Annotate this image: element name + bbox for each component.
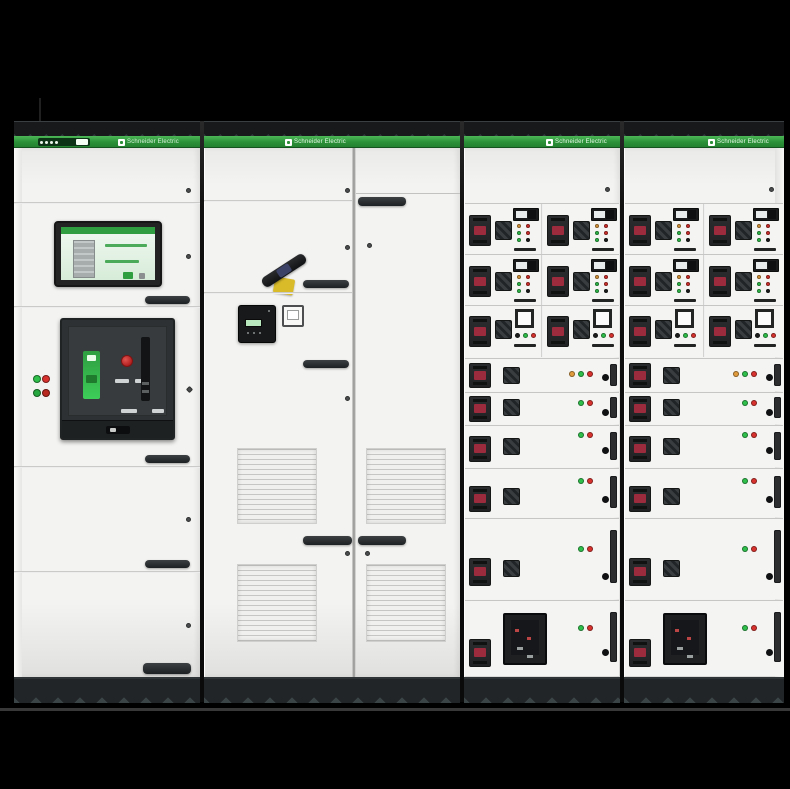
plinth [624, 677, 784, 703]
schneider-logo: Schneider Electric [285, 138, 346, 146]
screw [345, 396, 350, 401]
relay-display [753, 259, 779, 272]
drawer-row [625, 203, 783, 254]
drawer-row [465, 203, 619, 254]
door-handle [143, 663, 191, 674]
drawer-isolator-switch [735, 320, 752, 339]
status-led-red [587, 400, 593, 406]
screw [345, 245, 350, 250]
louver-vent [366, 448, 446, 524]
drawer-rail [610, 432, 617, 460]
status-led-green [677, 289, 681, 293]
roof-cable [39, 98, 41, 122]
breaker-tag [152, 409, 164, 413]
drawer-withdrawal-handle [547, 316, 569, 347]
status-led-green [757, 289, 761, 293]
relay-display [513, 208, 539, 221]
schneider-logo-icon [708, 139, 715, 146]
status-led-orange [733, 371, 739, 377]
roof-trim [204, 121, 460, 136]
screw [186, 386, 193, 393]
relay-display [513, 259, 539, 272]
drawer-unit [625, 204, 702, 254]
status-led-red [751, 371, 757, 377]
status-led-red [609, 333, 614, 338]
status-led-off [686, 238, 690, 242]
switchboard-photo: Schneider Electric [0, 0, 790, 789]
start-button-green [33, 389, 41, 397]
drawer-row [625, 305, 783, 357]
status-led-orange [677, 224, 681, 228]
panel-split [204, 200, 352, 202]
drawer-withdrawal-handle [629, 363, 651, 388]
screw [186, 188, 191, 193]
status-led-red [604, 282, 608, 286]
status-led-green [595, 289, 599, 293]
drawer-isolator-switch [573, 320, 590, 339]
status-led-red [531, 333, 536, 338]
drawer-unit [625, 255, 702, 305]
drawer-rail [774, 530, 781, 583]
status-led-red [771, 333, 776, 338]
drawer-withdrawal-handle [469, 363, 491, 388]
drawer-isolator-switch [503, 438, 520, 455]
drawer-withdrawal-handle [469, 639, 491, 667]
drawer-withdrawal-handle [469, 558, 491, 586]
louver-vent [366, 564, 446, 642]
drawer-withdrawal-handle [629, 396, 651, 422]
meter-window [755, 309, 774, 328]
drawer-rail [774, 397, 781, 418]
drawer-strip [514, 248, 536, 251]
drawer-withdrawal-handle [629, 436, 651, 462]
drawer-isolator-switch [573, 272, 590, 291]
drawer-isolator-switch [655, 320, 672, 339]
status-led-off [766, 238, 770, 242]
drawer-row-wide [625, 425, 783, 467]
panel-split [204, 292, 352, 294]
drawer-isolator-switch [495, 320, 512, 339]
drawer-latch [602, 374, 609, 381]
drawer-unit [543, 255, 618, 305]
drawer-row-wide [625, 518, 783, 599]
relay-display [673, 208, 699, 221]
cabinet-mcc-section-1: Schneider Electric [464, 121, 620, 703]
status-led-green [578, 432, 584, 438]
drawer-latch [766, 496, 773, 503]
plinth [204, 677, 460, 703]
drawer-isolator-switch [663, 560, 680, 577]
drawer-strip [592, 248, 614, 251]
status-led-red [686, 231, 690, 235]
status-led-green [595, 282, 599, 286]
status-led-red [587, 371, 593, 377]
cabinet-front [14, 148, 200, 677]
door-handle [145, 455, 190, 463]
drawer-withdrawal-handle [629, 558, 651, 586]
door-handle [145, 296, 190, 304]
relay-display [591, 208, 617, 221]
panel-split [356, 193, 460, 194]
drawer-row-wide [625, 600, 783, 676]
hmi-button [123, 272, 133, 279]
screw [345, 551, 350, 556]
status-led-red [526, 224, 530, 228]
status-led-off [526, 238, 530, 242]
status-led-orange [517, 275, 521, 279]
drawer-withdrawal-handle [469, 215, 491, 246]
schneider-logo: Schneider Electric [546, 138, 607, 146]
status-led-red [686, 282, 690, 286]
drawer-rail [774, 364, 781, 386]
louver-vent [237, 448, 317, 524]
screw [186, 254, 191, 259]
status-led-green [742, 625, 748, 631]
status-led-off [686, 289, 690, 293]
status-led-red [526, 282, 530, 286]
drawer-rail [610, 530, 617, 583]
multimeter [238, 305, 276, 343]
plinth [14, 677, 200, 703]
status-led-orange [595, 275, 599, 279]
drawer-row-wide [465, 600, 619, 676]
drawer-row [465, 254, 619, 305]
hmi-display [54, 221, 162, 287]
plinth [464, 677, 620, 703]
cabinet-mcc-section-2: Schneider Electric [624, 121, 784, 703]
drawer-row-wide [465, 468, 619, 517]
status-led-green [578, 625, 584, 631]
door-handle [303, 536, 352, 545]
drawer-latch [766, 649, 773, 656]
status-led-red [686, 224, 690, 228]
status-led-red [766, 275, 770, 279]
racking-rail [141, 337, 150, 401]
door-handle [358, 536, 406, 545]
panel-split [14, 466, 200, 468]
drawer-rail [610, 612, 617, 662]
drawer-withdrawal-handle [469, 486, 491, 512]
drawer-unit [543, 204, 618, 254]
status-led-green [595, 231, 599, 235]
breaker-green-label [83, 351, 100, 399]
hmi-switchboard-graphic [73, 240, 95, 278]
drawer-unit [465, 255, 540, 305]
drawer-rail [774, 612, 781, 662]
schneider-logo-icon [118, 139, 125, 146]
panel-split [14, 571, 200, 573]
drawer-latch [766, 447, 773, 454]
status-led-green [517, 289, 521, 293]
drawer-withdrawal-handle [629, 316, 651, 347]
status-led-green [601, 333, 606, 338]
status-led-red [751, 625, 757, 631]
drawer-strip [674, 299, 696, 302]
drawer-unit [465, 204, 540, 254]
hmi-screen-header [61, 227, 155, 234]
status-led-orange [517, 224, 521, 228]
drawer-isolator-switch [503, 488, 520, 505]
drawer-strip [754, 299, 776, 302]
drawer-withdrawal-handle [629, 639, 651, 667]
drawer-isolator-switch [663, 367, 680, 384]
cabinet-coupling-section: Schneider Electric [204, 121, 460, 703]
drawer-rail [610, 364, 617, 386]
relay-display [591, 259, 617, 272]
drawer-isolator-switch [735, 221, 752, 240]
drawer-row-wide [465, 425, 619, 467]
status-led-red [587, 546, 593, 552]
drawer-withdrawal-handle [469, 436, 491, 462]
drawer-row-wide [625, 358, 783, 391]
door-handle [145, 560, 190, 568]
drawer-isolator-switch [663, 399, 680, 416]
status-led-green [578, 546, 584, 552]
drawer-strip [592, 299, 614, 302]
drawer-row [465, 305, 619, 357]
relay-display [753, 208, 779, 221]
status-led-green [677, 238, 681, 242]
status-led-red [526, 231, 530, 235]
relay-display [673, 259, 699, 272]
drawer-latch [602, 496, 609, 503]
meter-display [245, 319, 262, 327]
status-led-off [526, 289, 530, 293]
door-handle [303, 360, 349, 368]
status-led-red [766, 282, 770, 286]
status-led-off [604, 289, 608, 293]
status-led-red [751, 400, 757, 406]
indicator-window [282, 305, 304, 327]
drawer-withdrawal-handle [547, 266, 569, 297]
drawer-unit [465, 306, 540, 357]
hmi-text-line [105, 260, 139, 263]
cabinet-front [204, 148, 460, 677]
brand-band: Schneider Electric [14, 136, 200, 148]
drawer-isolator-switch [503, 560, 520, 577]
drawer-isolator-switch [495, 221, 512, 240]
drawer-row-wide [465, 392, 619, 424]
cabinet-incoming-section: Schneider Electric [14, 121, 200, 703]
door-handle [358, 197, 406, 206]
stop-button-red [42, 389, 50, 397]
drawer-latch [602, 649, 609, 656]
drawer-latch [602, 573, 609, 580]
drawer-isolator-switch [735, 272, 752, 291]
status-led-green [757, 282, 761, 286]
racking-slot [106, 426, 130, 434]
schneider-logo: Schneider Electric [118, 138, 179, 146]
schneider-logo-text: Schneider Electric [555, 138, 607, 146]
start-button-green [33, 375, 41, 383]
breaker-display-unit [503, 613, 547, 665]
status-led-orange [595, 224, 599, 228]
drawer-unit [705, 306, 782, 357]
status-led-orange [757, 275, 761, 279]
status-led-off [675, 333, 680, 338]
breaker-tag [121, 409, 137, 413]
status-led-green [578, 400, 584, 406]
drawer-row [625, 254, 783, 305]
status-led-green [677, 231, 681, 235]
drawer-withdrawal-handle [629, 266, 651, 297]
hmi-text-line [105, 244, 147, 247]
roof-trim [14, 121, 200, 136]
drawer-row-wide [465, 358, 619, 391]
drawer-strip [514, 344, 536, 347]
screw [769, 187, 774, 192]
status-led-orange [677, 275, 681, 279]
drawer-strip [674, 344, 696, 347]
drawer-isolator-switch [495, 272, 512, 291]
drawer-latch [766, 573, 773, 580]
drawer-strip [514, 299, 536, 302]
drawer-strip [674, 248, 696, 251]
status-led-green [742, 478, 748, 484]
drawer-rail [610, 397, 617, 418]
status-led-orange [569, 371, 575, 377]
panel-split [14, 306, 200, 308]
brand-band: Schneider Electric [464, 136, 620, 148]
drawer-withdrawal-handle [629, 486, 651, 512]
drawer-strip [754, 344, 776, 347]
door-handle [303, 280, 349, 288]
drawer-withdrawal-handle [709, 215, 731, 246]
roof-trim [624, 121, 784, 136]
side-stile [14, 148, 22, 677]
louver-vent [237, 564, 317, 642]
drawer-row-wide [465, 518, 619, 599]
breaker-tag [115, 379, 129, 383]
status-led-green [578, 478, 584, 484]
status-led-green [757, 238, 761, 242]
screw [605, 187, 610, 192]
drawer-strip [754, 248, 776, 251]
racking-panel [62, 420, 173, 438]
drawer-unit [705, 255, 782, 305]
status-led-green [683, 333, 688, 338]
drawer-isolator-switch [573, 221, 590, 240]
brand-band: Schneider Electric [204, 136, 460, 148]
status-led-red [604, 224, 608, 228]
status-led-green [517, 231, 521, 235]
status-led-red [686, 275, 690, 279]
drawer-isolator-switch [655, 272, 672, 291]
schneider-logo-text: Schneider Electric [294, 138, 346, 146]
drawer-withdrawal-handle [469, 396, 491, 422]
drawer-isolator-switch [663, 438, 680, 455]
drawer-latch [766, 374, 773, 381]
schneider-logo-icon [285, 139, 292, 146]
status-led-red [766, 224, 770, 228]
drawer-isolator-switch [663, 488, 680, 505]
status-led-off [755, 333, 760, 338]
status-led-red [526, 275, 530, 279]
floor-line [0, 708, 790, 711]
status-led-green [523, 333, 528, 338]
drawer-withdrawal-handle [629, 215, 651, 246]
status-led-green [595, 238, 599, 242]
drawer-rail [610, 476, 617, 508]
status-led-green [517, 238, 521, 242]
series-logo-badge [38, 138, 90, 146]
status-led-green [742, 371, 748, 377]
drawer-withdrawal-handle [709, 316, 731, 347]
breaker-trip-button [121, 355, 133, 367]
drawer-latch [602, 409, 609, 416]
breaker-display-unit [663, 613, 707, 665]
screw [367, 243, 372, 248]
status-led-orange [757, 224, 761, 228]
drawer-isolator-switch [655, 221, 672, 240]
drawer-isolator-switch [503, 399, 520, 416]
panel-split [14, 202, 200, 204]
drawer-row-wide [625, 392, 783, 424]
drawer-latch [602, 447, 609, 454]
drawer-isolator-switch [503, 367, 520, 384]
meter-window [593, 309, 612, 328]
status-led-green [742, 546, 748, 552]
screw [365, 551, 370, 556]
status-led-green [517, 282, 521, 286]
drawer-latch [766, 409, 773, 416]
drawer-withdrawal-handle [709, 266, 731, 297]
status-led-red [751, 546, 757, 552]
hmi-button [139, 273, 145, 279]
drawer-withdrawal-handle [469, 316, 491, 347]
status-led-red [766, 231, 770, 235]
status-led-red [604, 231, 608, 235]
drawer-withdrawal-handle [547, 215, 569, 246]
brand-band: Schneider Electric [624, 136, 784, 148]
status-led-red [604, 275, 608, 279]
roof-trim [464, 121, 620, 136]
status-led-off [766, 289, 770, 293]
status-led-green [677, 282, 681, 286]
status-led-red [587, 478, 593, 484]
status-led-red [751, 478, 757, 484]
status-led-red [587, 625, 593, 631]
air-circuit-breaker [60, 318, 175, 440]
meter-window [515, 309, 534, 328]
drawer-withdrawal-handle [469, 266, 491, 297]
drawer-row-wide [625, 468, 783, 517]
status-led-green [578, 371, 584, 377]
status-led-off [604, 238, 608, 242]
status-led-red [691, 333, 696, 338]
screw [186, 623, 191, 628]
breaker-face [68, 326, 167, 416]
status-led-green [757, 231, 761, 235]
screw [345, 188, 350, 193]
drawer-strip [592, 344, 614, 347]
status-led-red [587, 432, 593, 438]
status-led-off [515, 333, 520, 338]
hmi-screen [61, 227, 155, 280]
drawer-unit [543, 306, 618, 357]
status-led-green [742, 400, 748, 406]
drawer-stack [624, 148, 784, 677]
drawer-rail [774, 432, 781, 460]
door-split [352, 148, 356, 677]
schneider-logo-text: Schneider Electric [717, 138, 769, 146]
status-led-red [751, 432, 757, 438]
drawer-unit [625, 306, 702, 357]
drawer-unit [705, 204, 782, 254]
schneider-logo-icon [546, 139, 553, 146]
stop-button-red [42, 375, 50, 383]
status-led-green [763, 333, 768, 338]
